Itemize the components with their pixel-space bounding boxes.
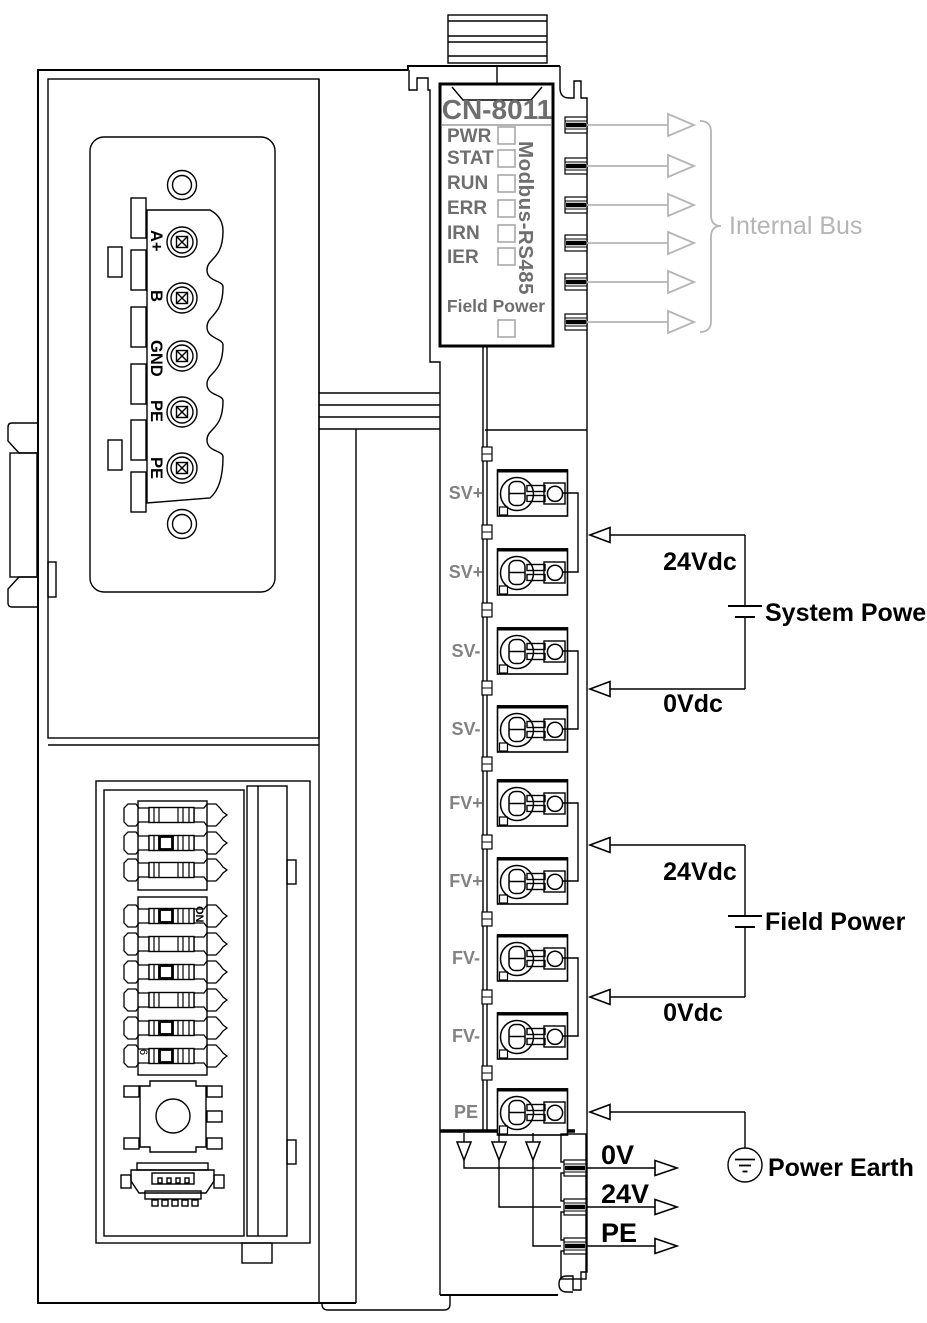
dip-switch [124, 1017, 227, 1039]
internal-bus: Internal Bus [565, 114, 862, 333]
bus-arrow-icon [668, 271, 694, 293]
battery-icon [728, 606, 762, 617]
module-joint-lines [319, 393, 440, 429]
center-module-top [408, 66, 560, 70]
bus-pin [565, 158, 587, 174]
battery-icon [728, 916, 762, 927]
internal-bus-label: Internal Bus [729, 212, 862, 240]
screw-terminal-a-plus [167, 227, 197, 257]
usb-side-tab [121, 1175, 131, 1188]
system-power-name: System Power [765, 599, 927, 627]
side-slot [48, 562, 56, 597]
terminal-label: PE [454, 1102, 478, 1122]
strip-tab [287, 860, 296, 884]
dip-switch [124, 989, 227, 1011]
led-label-err: ERR [447, 198, 487, 219]
module-model: CN-8011 [442, 94, 553, 125]
terminal-label-pe2: PE [147, 457, 165, 479]
bottom-hook [559, 1268, 587, 1292]
usb-side-tab [214, 1175, 224, 1188]
plug-latches [108, 198, 146, 512]
center-module-left-edge [409, 70, 440, 1295]
field-power-led-label: Field Power [447, 296, 545, 316]
dip-switch [124, 804, 227, 826]
service-panel: ON 6 [96, 781, 310, 1243]
dip-switch [124, 905, 227, 927]
bus-arrow-icon [668, 114, 694, 136]
terminal-block-sv-plus-1 [497, 470, 568, 516]
terminal-label: SV+ [449, 562, 484, 582]
button-pin [124, 1138, 139, 1149]
led-label-irn: IRN [447, 223, 480, 244]
led-label-stat: STAT [447, 148, 494, 169]
button-pin [207, 1086, 222, 1097]
system-power-circuit: 24Vdc 0Vdc System Power [590, 528, 927, 719]
right-arrow-icon [655, 1239, 677, 1254]
feedthrough-section: 0V 24V PE [457, 1133, 677, 1279]
bus-pin [565, 274, 587, 290]
earth-symbol-icon [728, 1148, 762, 1182]
dip-6-label: 6 [137, 1049, 149, 1055]
strip-tab [287, 1140, 296, 1164]
feed-block [561, 1173, 586, 1201]
system-power-minus-label: 0Vdc [663, 690, 723, 718]
field-power-circuit: 24Vdc 0Vdc Field Power [590, 838, 906, 1028]
wire-arrow-icon [590, 990, 610, 1005]
terminal-label: FV- [452, 948, 480, 968]
terminal-block-sv-plus-2 [497, 549, 568, 595]
terminal-label-a-plus: A+ [147, 230, 165, 252]
terminal-block-sv-minus-2 [497, 706, 568, 752]
card-edge-strip [247, 786, 287, 1236]
label-plate: CN-8011 PWR STAT RUN ERR IRN IER Modbus-… [440, 84, 553, 346]
left-module-outline [38, 70, 408, 1303]
wiring-diagram: A+ B GND PE PE CN-8011 PWR STAT RUN [0, 0, 927, 1323]
terminal-label: FV+ [449, 871, 483, 891]
power-earth-circuit: Power Earth [590, 1105, 914, 1183]
bus-pin [565, 314, 587, 330]
rs485-connector: A+ B GND PE PE [90, 137, 275, 592]
screw-terminal-pe1 [167, 397, 197, 427]
left-module-inner-panel [48, 79, 319, 738]
dip-switch [124, 961, 227, 983]
wire-arrow-icon [590, 682, 610, 697]
wire-arrow-icon [590, 528, 610, 543]
bus-arrow-icon [668, 232, 694, 254]
power-earth-label: Power Earth [768, 1154, 914, 1182]
wire-arrow-icon [590, 1105, 610, 1120]
field-power-minus-label: 0Vdc [663, 999, 723, 1027]
terminal-label-b: B [147, 290, 165, 302]
terminal-block-fv-minus-2 [497, 1013, 568, 1059]
terminal-label: FV- [452, 1026, 480, 1046]
field-power-plus-label: 24Vdc [663, 858, 737, 886]
terminal-block-sv-minus-1 [497, 628, 568, 674]
bus-pin [565, 117, 587, 133]
dip-switch [124, 832, 227, 854]
terminal-block-fv-plus-2 [497, 858, 568, 904]
bus-arrow-icon [668, 311, 694, 333]
right-arrow-icon [655, 1161, 677, 1176]
field-power-name: Field Power [765, 908, 906, 936]
terminal-block-pe [497, 1089, 568, 1135]
button-pin [124, 1086, 139, 1097]
top-bus-connector [448, 15, 547, 63]
led-label-ier: IER [447, 247, 479, 268]
feed-pin [564, 1199, 586, 1215]
led-label-run: RUN [447, 173, 488, 194]
dip-switch [124, 933, 227, 955]
bus-brace [700, 121, 721, 332]
dip-switch [124, 859, 227, 881]
system-power-plus-label: 24Vdc [663, 548, 737, 576]
connector-bezel [90, 137, 275, 592]
feedthrough-24v-label: 24V [601, 1179, 649, 1209]
feed-block [561, 1251, 586, 1279]
screw-terminal-pe2 [167, 453, 197, 483]
terminal-label: SV- [451, 641, 480, 661]
button-pin [207, 1138, 222, 1149]
rs485-screw-terminals [167, 227, 197, 483]
screw-terminal-b [167, 283, 197, 313]
down-arrow-icon [526, 1142, 540, 1160]
terminal-label-pe1: PE [147, 400, 165, 422]
button-pin [207, 1111, 222, 1122]
bus-arrow-icon [668, 155, 694, 177]
micro-usb-port [121, 1163, 224, 1206]
push-button [124, 1081, 222, 1152]
mounting-foot [242, 1243, 272, 1263]
feedthrough-pe-label: PE [601, 1218, 637, 1248]
bus-pin [565, 235, 587, 251]
din-rail-clip [8, 423, 38, 607]
power-terminal-strip: SV+ SV+ SV- SV- FV+ FV+ FV- FV- PE [440, 347, 578, 1135]
terminal-label: FV+ [449, 793, 483, 813]
terminal-block-fv-plus-1 [497, 780, 568, 826]
screw-terminal-gnd [167, 341, 197, 371]
feedthrough-0v-label: 0V [601, 1140, 634, 1170]
terminal-label: SV- [451, 719, 480, 739]
down-arrow-icon [492, 1142, 506, 1160]
down-arrow-icon [457, 1142, 471, 1160]
right-arrow-icon [655, 1200, 677, 1215]
dip-on-label: ON [193, 906, 205, 923]
page: { "module": { "model": "CN-8011", "inter… [0, 0, 927, 1323]
feed-pin [564, 1238, 586, 1254]
led-label-pwr: PWR [447, 126, 492, 147]
bus-arrow-icon [668, 194, 694, 216]
interface-label: Modbus-RS485 [514, 141, 537, 295]
service-panel-inner [104, 790, 244, 1236]
wire-arrow-icon [590, 838, 610, 853]
bus-signal-wires [587, 114, 694, 333]
terminal-label-gnd: GND [147, 340, 165, 377]
terminal-block-fv-minus-1 [497, 935, 568, 981]
terminal-label: SV+ [449, 483, 484, 503]
feed-block [561, 1134, 586, 1162]
left-module-housing [8, 70, 450, 1310]
feed-block [561, 1212, 586, 1240]
bus-pin [565, 197, 587, 213]
feed-pin [564, 1160, 586, 1176]
